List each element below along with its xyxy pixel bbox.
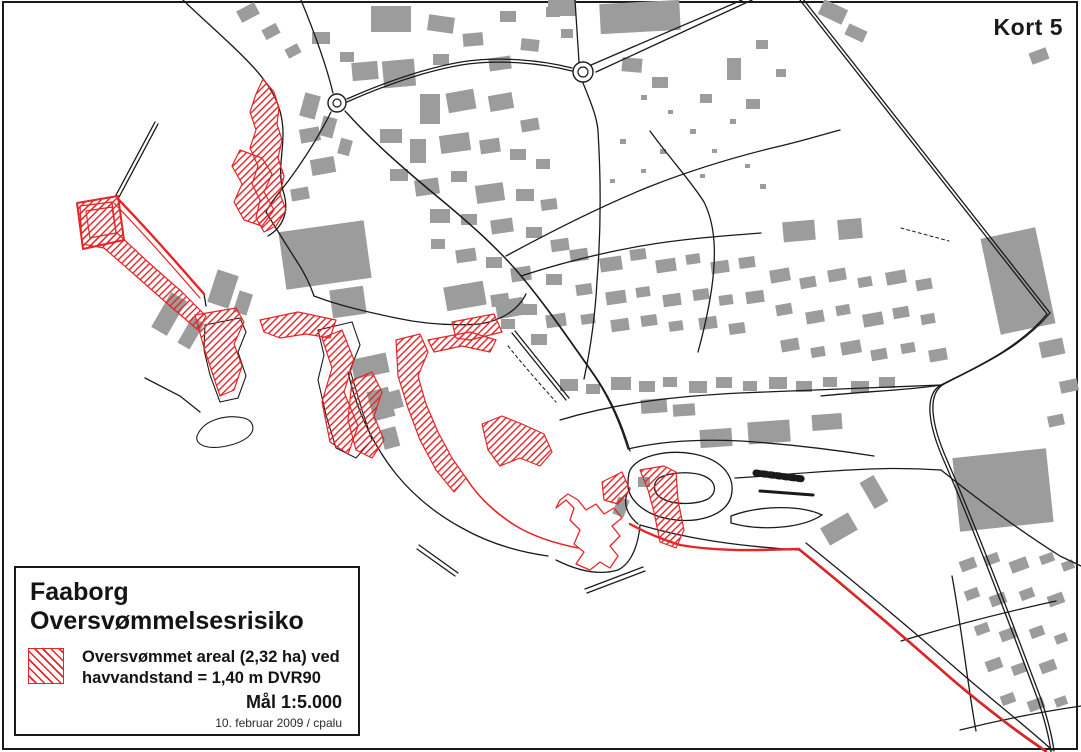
- building-footprint: [811, 413, 842, 431]
- building-footprint: [892, 306, 910, 320]
- building-footprint: [689, 381, 707, 393]
- building-footprint: [776, 69, 786, 77]
- building-footprint: [769, 377, 787, 389]
- building-footprint: [862, 311, 884, 327]
- building-footprint: [479, 138, 501, 155]
- building-footprint: [692, 288, 709, 301]
- building-footprint: [698, 316, 717, 330]
- building-footprint: [451, 171, 467, 182]
- road-line: [803, 0, 1054, 751]
- building-footprint: [799, 276, 817, 290]
- building-footprint: [985, 657, 1004, 673]
- building-footprint: [445, 89, 476, 114]
- building-footprint: [730, 119, 736, 124]
- building-footprint: [668, 110, 673, 114]
- building-footprint: [531, 334, 547, 345]
- building-footprint: [561, 29, 573, 38]
- building-footprint: [1054, 632, 1068, 645]
- building-footprint: [1061, 559, 1075, 572]
- building-footprint: [310, 156, 336, 176]
- road-line: [417, 549, 455, 576]
- building-footprint: [207, 269, 238, 308]
- building-footprint: [673, 403, 696, 417]
- flood-hatch-area: [396, 334, 466, 492]
- building-footprint: [964, 587, 981, 601]
- road-line: [587, 571, 645, 593]
- building-footprint: [641, 169, 646, 173]
- building-footprint: [920, 313, 936, 325]
- building-footprint: [550, 238, 569, 252]
- building-footprint: [290, 187, 310, 202]
- flood-hatch-area: [482, 416, 552, 466]
- building-footprint: [605, 290, 627, 306]
- building-footprint: [500, 11, 516, 22]
- building-footprint: [420, 94, 440, 124]
- building-footprint: [716, 377, 732, 388]
- sheet-label: Kort 5: [994, 14, 1063, 41]
- building-footprint: [747, 420, 790, 445]
- building-footprint: [805, 310, 825, 325]
- building-footprint: [516, 189, 534, 201]
- building-footprint: [351, 61, 378, 81]
- flood-hatch-area: [260, 312, 336, 338]
- building-footprint: [769, 267, 791, 283]
- building-footprint: [820, 512, 858, 545]
- building-footprint: [635, 286, 650, 298]
- building-footprint: [488, 56, 512, 72]
- road-line: [585, 567, 643, 589]
- building-footprint: [329, 286, 367, 318]
- building-footprint: [486, 257, 502, 268]
- building-footprint: [756, 40, 768, 49]
- roundabout-inner: [333, 99, 341, 107]
- building-footprint: [780, 338, 800, 353]
- building-footprint: [488, 92, 514, 112]
- building-footprint: [427, 14, 455, 33]
- legend-item-line1: Oversvømmet areal (2,32 ha) ved: [82, 647, 352, 668]
- flood-boundary-line: [556, 494, 622, 570]
- building-footprint: [668, 320, 683, 332]
- building-footprint: [738, 256, 755, 269]
- building-footprint: [433, 54, 449, 65]
- building-footprint: [599, 256, 623, 273]
- building-footprint: [431, 239, 445, 249]
- building-footprint: [340, 52, 354, 62]
- building-footprint: [284, 43, 301, 58]
- building-footprint: [782, 220, 816, 243]
- building-footprint: [1047, 592, 1066, 608]
- road-line: [901, 228, 949, 241]
- road-line: [806, 543, 1052, 750]
- flood-hatch-area: [452, 314, 502, 340]
- building-footprint: [728, 322, 745, 335]
- building-footprint: [410, 139, 426, 163]
- building-footprint: [540, 198, 557, 211]
- building-footprint: [870, 348, 888, 362]
- building-footprint: [900, 342, 916, 354]
- building-footprint: [520, 38, 539, 52]
- building-footprint: [236, 2, 260, 23]
- building-footprint: [546, 274, 562, 285]
- building-footprint: [548, 0, 576, 16]
- road-line: [800, 0, 1051, 752]
- building-footprint: [827, 268, 847, 283]
- roundabout-inner: [578, 67, 588, 77]
- legend-box: Faaborg Oversvømmelsesrisiko Oversvømmet…: [14, 566, 360, 736]
- building-footprint: [727, 58, 741, 80]
- flood-boundary-line: [799, 549, 1046, 751]
- road-line: [556, 525, 640, 572]
- building-footprint: [299, 92, 321, 119]
- road-line: [301, 0, 333, 93]
- legend-title-line1: Faaborg: [30, 578, 358, 607]
- road-line: [145, 378, 200, 412]
- building-footprint: [443, 281, 487, 312]
- building-footprint: [823, 377, 837, 387]
- building-footprint: [844, 23, 867, 42]
- building-footprint: [699, 428, 732, 448]
- road-line: [115, 122, 155, 197]
- building-footprint: [1000, 692, 1017, 706]
- building-footprint: [380, 129, 402, 143]
- building-footprint: [810, 346, 826, 358]
- building-footprint: [490, 218, 514, 235]
- building-footprint: [520, 118, 540, 133]
- building-footprint: [851, 381, 869, 393]
- date-credit: 10. februar 2009 / cpalu: [215, 716, 342, 730]
- building-footprint: [569, 248, 588, 262]
- building-footprint: [620, 139, 626, 144]
- building-footprint: [746, 99, 760, 109]
- building-footprint: [775, 303, 793, 317]
- building-footprint: [974, 622, 991, 636]
- building-footprint: [818, 0, 848, 25]
- legend-item-text: Oversvømmet areal (2,32 ha) ved havvands…: [82, 647, 352, 689]
- building-footprint: [390, 169, 408, 181]
- building-footprint: [1008, 556, 1029, 573]
- road-line: [419, 545, 458, 573]
- building-footprint: [610, 318, 629, 332]
- building-footprint: [641, 95, 647, 100]
- building-footprint: [745, 290, 764, 304]
- road-line: [952, 576, 976, 731]
- building-footprint: [639, 381, 655, 392]
- building-footprint: [371, 6, 411, 32]
- building-footprint: [526, 227, 542, 238]
- building-footprint: [915, 278, 933, 292]
- building-footprint: [599, 0, 680, 34]
- building-footprint: [685, 253, 700, 265]
- flood-hatch-area: [640, 466, 684, 548]
- building-footprint: [475, 182, 505, 204]
- building-footprint: [430, 209, 450, 223]
- building-footprint: [575, 283, 592, 296]
- road-line: [118, 124, 158, 199]
- building-footprint: [629, 248, 646, 261]
- building-footprint: [928, 348, 948, 363]
- map-sheet: Kort 5 Faaborg Oversvømmelsesrisiko Over…: [0, 0, 1081, 752]
- building-footprint: [1028, 47, 1049, 64]
- building-footprint: [337, 138, 353, 157]
- building-footprint: [1029, 625, 1046, 639]
- building-footprint: [299, 126, 321, 143]
- building-footprint: [690, 129, 696, 134]
- building-footprint: [655, 258, 677, 274]
- building-footprint: [835, 304, 851, 316]
- building-footprint: [700, 94, 712, 103]
- building-footprint: [640, 314, 657, 327]
- building-footprint: [663, 377, 677, 387]
- building-footprint: [662, 293, 681, 307]
- building-footprint: [462, 32, 483, 47]
- building-footprint: [501, 319, 515, 329]
- building-footprint: [1039, 552, 1055, 565]
- building-footprint: [837, 218, 863, 240]
- building-footprint: [760, 184, 766, 189]
- building-footprint: [382, 59, 416, 89]
- building-footprint: [439, 132, 471, 154]
- road-line: [575, 0, 579, 62]
- road-line: [731, 508, 822, 528]
- building-footprint: [510, 149, 526, 160]
- building-footprint: [261, 23, 280, 40]
- building-footprint: [1039, 659, 1058, 675]
- building-footprint: [959, 557, 978, 573]
- road-line: [583, 83, 600, 379]
- flood-boundary-line: [466, 478, 578, 548]
- road-line: [760, 491, 813, 495]
- flood-hatch-swatch: [28, 648, 64, 684]
- building-footprint: [455, 248, 477, 264]
- building-footprint: [1039, 338, 1066, 359]
- building-footprint: [1019, 587, 1036, 601]
- building-footprint: [718, 294, 733, 306]
- building-footprint: [860, 475, 889, 509]
- road-line: [508, 346, 556, 402]
- building-footprint: [857, 276, 873, 288]
- flood-hatch-area: [195, 308, 244, 396]
- legend-title-line2: Oversvømmelsesrisiko: [30, 607, 358, 636]
- building-footprint: [1047, 413, 1065, 427]
- building-footprint: [700, 174, 705, 178]
- harbor-basin-outline: [197, 417, 253, 448]
- road-line: [960, 706, 1081, 730]
- scale-label: Mål 1:5.000: [246, 692, 342, 713]
- building-footprint: [885, 269, 907, 285]
- building-footprint: [1054, 695, 1068, 708]
- flood-hatch-area: [80, 202, 206, 330]
- building-footprint: [652, 77, 668, 88]
- legend-title: Faaborg Oversvømmelsesrisiko: [30, 578, 358, 636]
- building-footprint: [611, 377, 631, 390]
- building-footprint: [743, 381, 757, 391]
- building-footprint: [745, 164, 750, 168]
- building-footprint: [610, 179, 615, 183]
- building-footprint: [840, 339, 862, 355]
- legend-item-line2: havvandstand = 1,40 m DVR90: [82, 668, 352, 689]
- building-footprint: [536, 159, 550, 169]
- building-footprint: [586, 384, 600, 394]
- building-footprint: [712, 149, 717, 153]
